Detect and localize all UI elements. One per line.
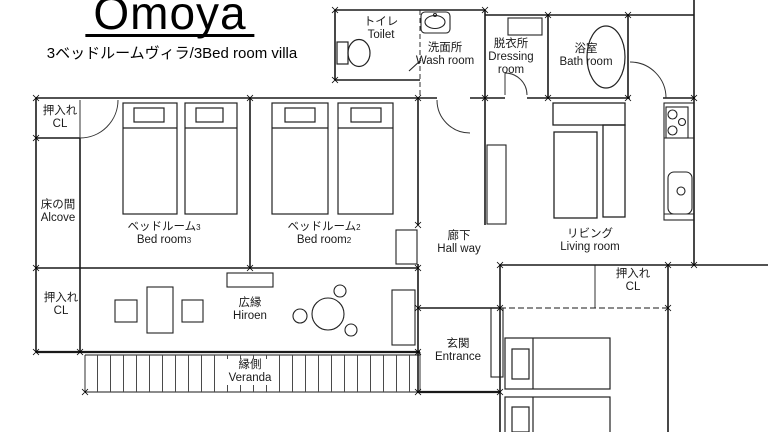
pillow-icon — [512, 407, 529, 432]
pillow-icon — [285, 108, 315, 122]
label-bedroom2: ベッドルーム2 Bed room2 — [287, 221, 360, 247]
stool-icon — [293, 309, 307, 323]
stool-icon — [345, 324, 357, 336]
label-hallway: 廊下 Hall way — [437, 230, 480, 256]
pillow-icon — [134, 108, 164, 122]
hallway-cabinet — [487, 145, 506, 224]
label-closet-bottom-left: 押入れ CL — [44, 292, 79, 318]
bedroom1-beds — [505, 338, 610, 432]
bed-icon — [338, 103, 393, 214]
bed-icon — [272, 103, 328, 214]
entrance-shoe-cabinet — [491, 308, 503, 377]
label-closet-right: 押入れ CL — [616, 268, 651, 294]
label-entrance: 玄関 Entrance — [435, 338, 481, 364]
kitchen-sink-icon — [668, 172, 692, 214]
door-washroom-hallway — [437, 100, 470, 133]
label-living-room: リビング Living room — [560, 228, 619, 254]
label-bath-room: 浴室 Bath room — [559, 43, 612, 69]
pillow-icon — [351, 108, 381, 122]
label-veranda: 縁側 Veranda — [226, 359, 275, 385]
bedroom2-cabinet — [396, 230, 417, 264]
floor-plan: Omoya 3ベッドルームヴィラ/3Bed room villa トイレ Toi… — [0, 0, 768, 432]
label-wash-room: 洗面所 Wash room — [416, 42, 474, 68]
round-table-icon — [312, 298, 344, 330]
dressing-cabinet — [508, 18, 542, 35]
label-dressing-room: 脱衣所 Dressing room — [488, 38, 533, 78]
door-arcs — [80, 62, 666, 138]
stool-icon — [334, 285, 346, 297]
living-room-furniture — [553, 103, 625, 218]
door-closet-bedroom3 — [80, 100, 118, 138]
label-hiroen: 広縁 Hiroen — [233, 297, 267, 323]
door-bath-kitchen — [630, 62, 666, 98]
bed-icon — [185, 103, 237, 214]
bed-icon — [505, 338, 610, 389]
label-toilet: トイレ Toilet — [364, 16, 399, 42]
bedroom3-beds — [123, 103, 237, 214]
kitchen-counter — [664, 103, 694, 220]
bed-icon — [123, 103, 177, 214]
page-title: Omoya — [85, 0, 254, 37]
bedroom2-beds — [272, 103, 393, 214]
bed-icon — [505, 397, 610, 432]
pillow-icon — [512, 349, 529, 379]
page-subtitle: 3ベッドルームヴィラ/3Bed room villa — [47, 42, 297, 63]
toilet-icon — [337, 40, 370, 67]
pillow-icon — [196, 108, 223, 122]
label-closet-top-left: 押入れ CL — [43, 105, 78, 131]
label-alcove: 床の間 Alcove — [41, 199, 76, 225]
label-bedroom3: ベッドルーム3 Bed room3 — [127, 221, 200, 247]
